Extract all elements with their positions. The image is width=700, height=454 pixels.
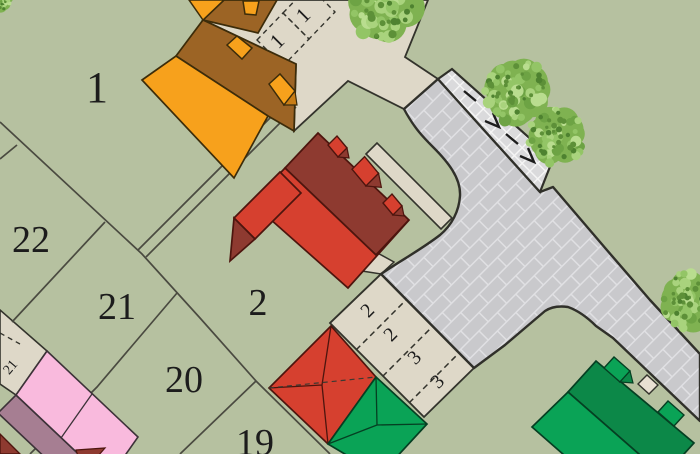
svg-text:19: 19 — [236, 422, 274, 454]
svg-text:20: 20 — [165, 359, 203, 401]
svg-text:1: 1 — [86, 63, 108, 112]
svg-text:21: 21 — [98, 286, 136, 328]
svg-text:22: 22 — [12, 219, 50, 261]
svg-text:2: 2 — [249, 282, 268, 324]
